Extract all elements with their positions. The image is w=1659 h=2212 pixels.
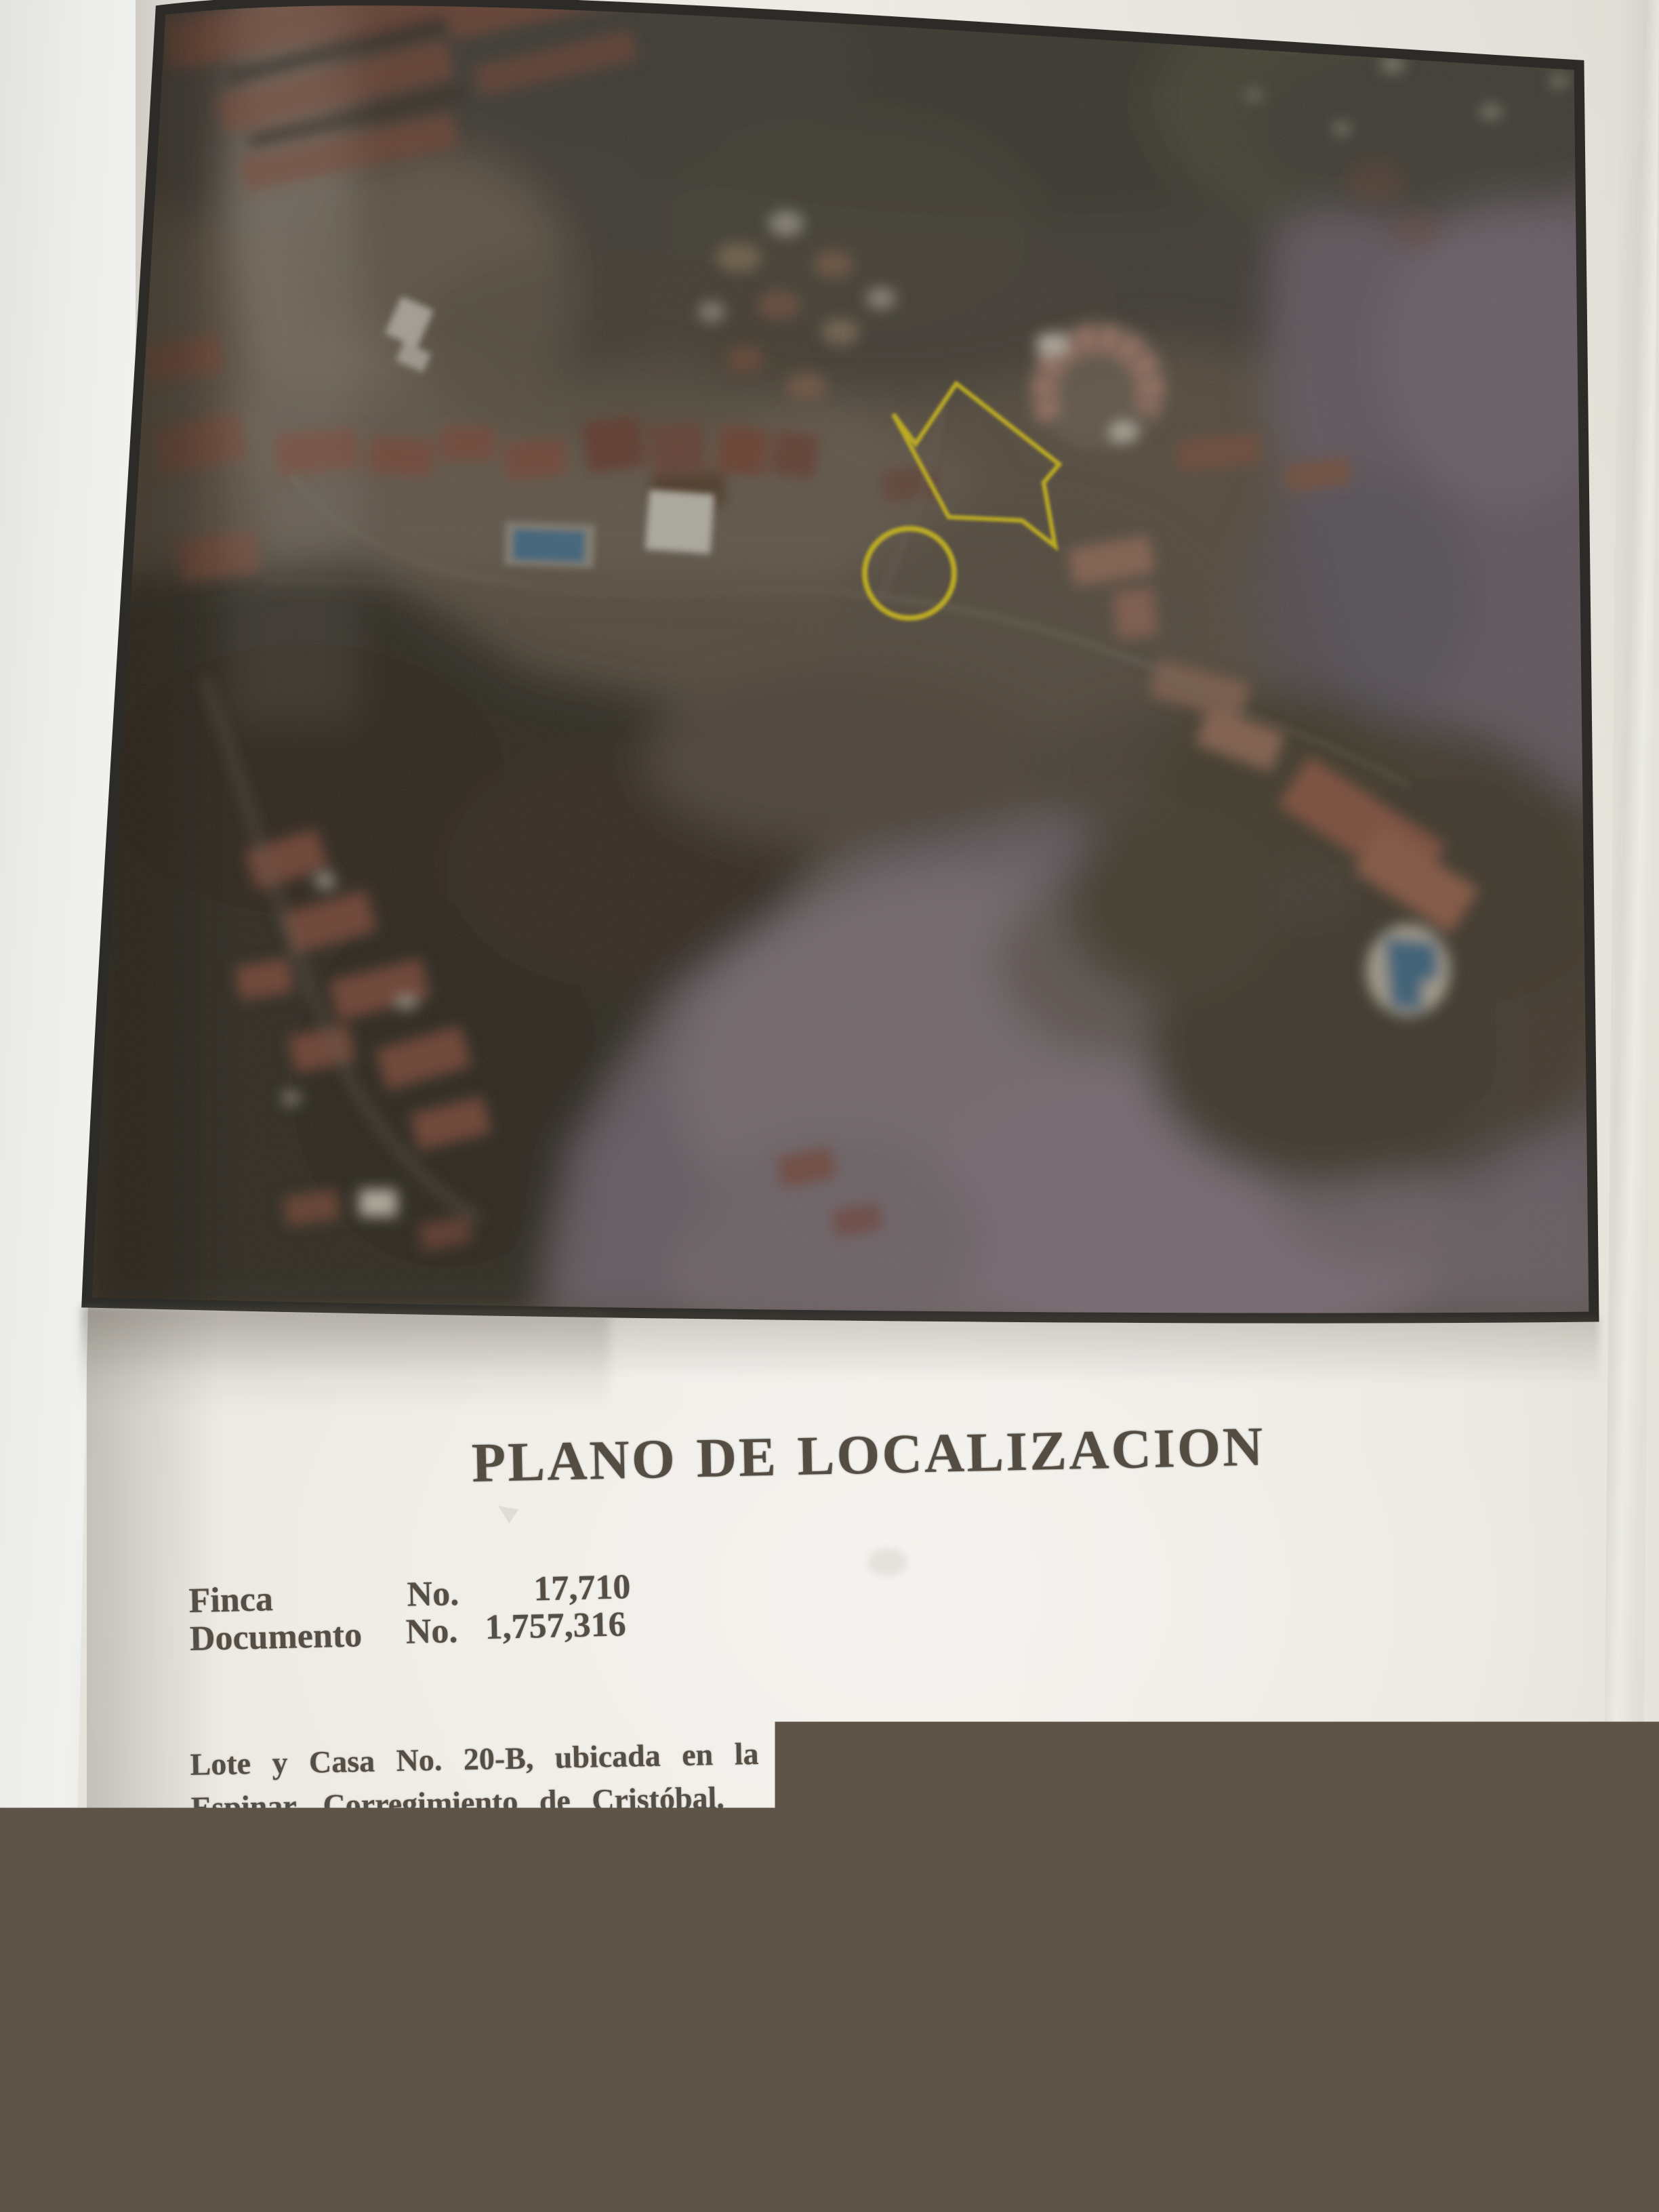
svg-text:AVALUOS: AVALUOS	[1273, 2136, 1478, 2167]
